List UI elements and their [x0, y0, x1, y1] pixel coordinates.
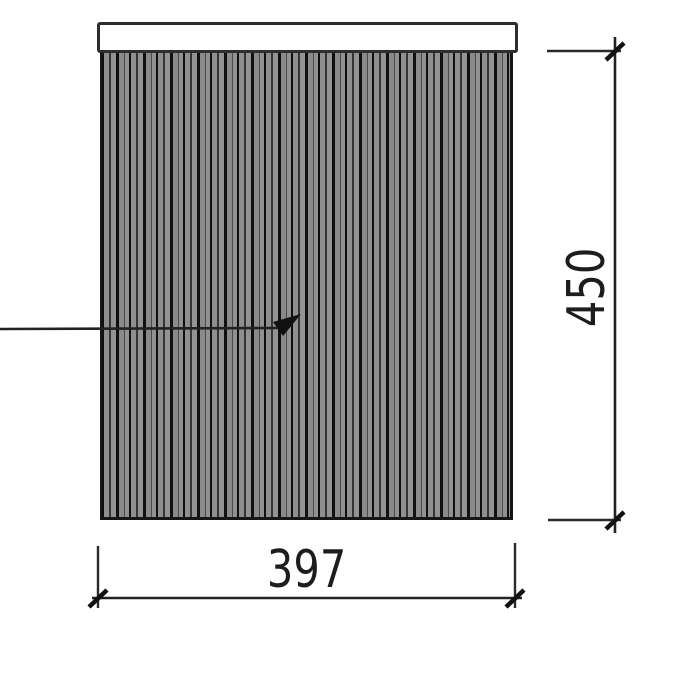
leader-line	[0, 328, 278, 329]
height-dimension-label: 450	[561, 167, 613, 407]
leader-callout	[0, 314, 301, 336]
drawing-canvas: 397 450	[0, 0, 693, 693]
arrowhead-icon	[273, 314, 301, 336]
height-dimension-value: 450	[561, 247, 613, 326]
width-dimension-label: 397	[187, 544, 427, 596]
width-dimension-value: 397	[267, 544, 346, 596]
